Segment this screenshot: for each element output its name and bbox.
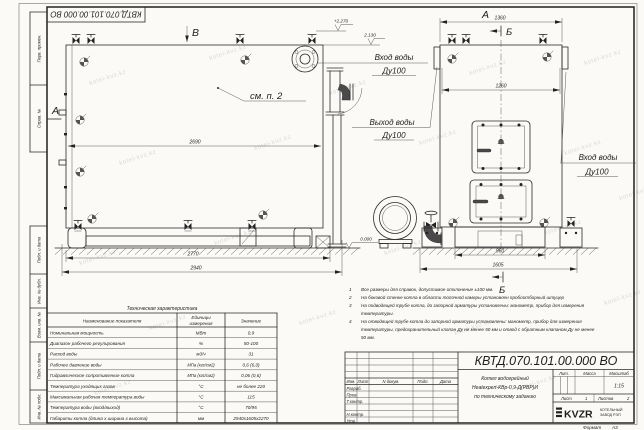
dim-1605: 1605 [492, 263, 503, 269]
tb-title-line1: Котел водогрейный [481, 375, 529, 382]
col-header-name: Наименование показателя [83, 319, 142, 324]
lifting-eye-icon [241, 54, 251, 64]
view-a-title: А [481, 9, 489, 21]
lifting-eye-icon [543, 51, 553, 61]
table-cell: Расход воды [50, 352, 78, 357]
table-cell: Температура воды (вход/выход) [50, 405, 121, 410]
note-line: На подводящей трубе котла, до запорной а… [361, 302, 585, 308]
tb-title-line2: Heatexpert-КВр-0,9-Д(РВР)И [472, 385, 538, 391]
svg-text:kotel-kvz.kz: kotel-kvz.kz [419, 129, 458, 147]
table-cell: Максимальная рабочая температура воды [50, 395, 145, 400]
ground [55, 248, 598, 255]
tb-sheets-value: 2 [626, 396, 630, 401]
valve-icon [462, 35, 470, 46]
tb-doc-number: КВТД.070.101.00.000 ВО [475, 354, 618, 368]
margin-label-podp1: Подп. и дата [37, 236, 42, 263]
format-note: Формат А3 [583, 425, 618, 430]
boiler-side-view [59, 35, 362, 249]
table-cell: °С [198, 405, 204, 410]
table-cell: 50-100 [244, 341, 259, 346]
tb-col-izm: Изм. [347, 379, 356, 384]
drain-valve-icon [74, 221, 82, 232]
svg-text:kotel-kvz.kz: kotel-kvz.kz [214, 229, 253, 247]
table-cell: 0,6 (6,0) [242, 362, 260, 367]
tb-sheet-value: 1 [585, 396, 587, 401]
tb-col-list: Лист [357, 379, 369, 384]
tb-sheet-label: Лист [560, 396, 572, 401]
table-cell: Рабочее давление воды [50, 362, 102, 367]
svg-text:kotel-kvz.kz: kotel-kvz.kz [619, 184, 644, 202]
view-arrow-v-label: В [192, 27, 199, 39]
view-arrow-a-label: А [51, 105, 59, 117]
note-line: На боковой стенке котла в области топочн… [361, 294, 565, 300]
table-cell: °С [198, 384, 204, 389]
lifting-eye-icon [449, 217, 459, 227]
valve-icon [308, 35, 316, 46]
table-cell: м3/ч [196, 352, 206, 357]
table-cell: Номинальная мощность [50, 330, 104, 335]
table-cell: Габариты котла (длина х ширина х высота) [50, 416, 148, 421]
note-number: 2 [348, 295, 352, 300]
tb-title-line3: по техническому заданию [474, 394, 536, 400]
svg-text:Ду100: Ду100 [381, 131, 406, 140]
tb-sheets-label: Листов [597, 396, 614, 401]
margin-label-inv-podl: Инв. № подл. [37, 394, 42, 420]
svg-text:Выход воды: Выход воды [370, 118, 415, 127]
table-cell: МПа (кгс/см2) [187, 362, 215, 367]
kvzr-logo: KVZR КОТЕЛЬНЫЙ ЗАВОД РЭП [556, 408, 623, 421]
tb-row-razrab: Разраб. [347, 386, 362, 391]
svg-text:kotel-kvz.kz: kotel-kvz.kz [604, 289, 643, 307]
format-value: А3 [611, 425, 618, 430]
drawing-sheet: kotel-kvz.kzkotel-kvz.kzkotel-kvz.kzkote… [0, 0, 644, 430]
svg-text:Вход воды: Вход воды [579, 153, 618, 162]
table-cell: мм [198, 416, 205, 421]
notes: 1 Все размеры для справок, допустимое от… [348, 287, 595, 340]
table-cell: Гидравлическое сопротивление котла [50, 373, 135, 378]
lifting-eye-icon [259, 209, 269, 219]
door-handle [477, 149, 491, 152]
tb-row-utv: Утв. [347, 418, 357, 423]
format-label: Формат [583, 425, 601, 430]
tech-table-title: Техническая характеристика [127, 306, 198, 312]
svg-text:kotel-kvz.kz: kotel-kvz.kz [149, 314, 188, 332]
dim-1360: 1360 [494, 16, 505, 22]
note-line: На отводящей трубе котла до запорной арм… [361, 318, 582, 324]
lifting-eye-icon [448, 53, 458, 63]
section-b-top-label: Б [506, 27, 512, 38]
svg-text:kotel-kvz.kz: kotel-kvz.kz [469, 59, 508, 77]
tb-row-tkontr: Т.контр. [347, 399, 364, 404]
door-lock-icon [498, 139, 505, 143]
base-frame [68, 228, 330, 248]
svg-text:Ду100: Ду100 [381, 67, 406, 76]
title-block: Изм. Лист N докум. Подп. Дата Разраб. Пр… [345, 352, 634, 423]
tb-row-nkontr: Н.контр. [347, 412, 365, 417]
svg-text:kotel-kvz.kz: kotel-kvz.kz [119, 149, 158, 167]
tb-scale-label: Масштаб [609, 371, 629, 376]
margin-label-perv: Перв. примен. [37, 35, 42, 63]
margin-label-sprav: Справ. № [37, 109, 42, 128]
svg-text:kotel-kvz.kz: kotel-kvz.kz [209, 44, 248, 62]
lifting-eye-icon [76, 114, 86, 124]
col-header-value: Значение [241, 319, 262, 324]
drain-valve-icon [184, 221, 192, 232]
tb-scale-value: 1:15 [614, 384, 624, 390]
note-number: 4 [349, 319, 352, 324]
table-cell: 0,9 [248, 330, 255, 335]
kvzr-logo-sub1: КОТЕЛЬНЫЙ [600, 408, 623, 412]
dim-2770: 2770 [186, 252, 198, 258]
svg-text:Вход воды: Вход воды [375, 53, 414, 62]
tb-lit-label: Лит. [558, 371, 569, 376]
inlet-right-label: Вход воды Ду100 [560, 72, 636, 177]
fan-blower [374, 197, 417, 249]
lifting-eye-icon [540, 217, 550, 227]
kvzr-logo-sub2: ЗАВОД РЭП [600, 413, 621, 417]
kvzr-logo-text: KVZR [564, 409, 593, 421]
watermarks: kotel-kvz.kzkotel-kvz.kzkotel-kvz.kzkote… [79, 44, 644, 397]
top-stamp: КВТД.070.101.00.000 ВО [47, 7, 145, 22]
table-cell: 31 [248, 352, 254, 357]
valve-icon [87, 35, 95, 46]
note-number: 3 [349, 303, 352, 308]
table-cell: Температура уходящих газов [50, 384, 115, 389]
note-line: 50 мм. [361, 335, 375, 340]
lifting-eye-icon [76, 166, 86, 176]
svg-text:kotel-kvz.kz: kotel-kvz.kz [254, 134, 293, 152]
tb-col-podp: Подп. [417, 379, 428, 384]
note-line: температуры, предохранительный клапан Ду… [361, 326, 595, 332]
ground-hatch [55, 248, 596, 254]
lifting-eye-icon [88, 213, 98, 223]
svg-text:Ду100: Ду100 [584, 168, 609, 177]
top-stamp-number: КВТД.070.101.00.000 ВО [50, 10, 141, 19]
table-cell: 115 [247, 395, 255, 400]
valve-icon [539, 35, 547, 46]
level-inlet-value: 2.130 [363, 33, 376, 38]
table-cell: °С [198, 395, 204, 400]
table-cell: МВт [196, 330, 207, 335]
margin-label-inv-dubl: Инв. № дубл. [37, 278, 42, 304]
col-header-units2: измерения [190, 321, 214, 326]
outlet-label: Выход воды Ду100 [352, 67, 437, 140]
see-note-label: см. п. 2 [250, 91, 283, 102]
tb-col-data: Дата [439, 379, 452, 384]
tb-massa-label: Масса [583, 371, 596, 376]
level-top-value: +2.270 [334, 19, 349, 24]
dim-2690: 2690 [188, 140, 200, 146]
table-cell: 2940х1605х2270 [232, 416, 269, 421]
dim-960: 960 [496, 249, 505, 255]
col-header-units1: Единицы [191, 315, 211, 320]
svg-text:kotel-kvz.kz: kotel-kvz.kz [89, 69, 128, 87]
inlet-flange [292, 46, 318, 72]
valve-icon [448, 35, 456, 46]
valve-icon [72, 35, 80, 46]
svg-text:kotel-kvz.kz: kotel-kvz.kz [584, 49, 623, 67]
door-handle [473, 200, 488, 203]
inlet-left-label: Вход воды Ду100 [318, 53, 428, 76]
lifting-eye-icon [80, 56, 90, 66]
drawing-canvas: kotel-kvz.kzkotel-kvz.kzkotel-kvz.kzkote… [0, 0, 644, 430]
boiler-front-view [422, 35, 582, 253]
margin-label-podp2: Подп. и дата [37, 352, 42, 379]
table-cell: Диапазон рабочего регулирования [49, 341, 126, 346]
note-line: Все размеры для справок, допустимое откл… [361, 287, 493, 292]
table-cell: не более 220 [237, 384, 265, 389]
margin-label-vzam: Взам. инв. № [37, 312, 42, 338]
view-labels: А В А Б Б см. п. 2 [47, 9, 512, 296]
table-cell: 0,06 (0,6) [241, 373, 261, 378]
door-lock-icon [498, 194, 505, 198]
table-cell: 70/95 [245, 405, 257, 410]
level-ground-value: 0.000 [360, 237, 372, 242]
dim-2940: 2940 [189, 266, 201, 272]
valve-icon [236, 35, 244, 46]
dimensions: 2690 2770 2940 1360 1260 960 1605 [62, 16, 577, 277]
tb-col-doc: N докум. [383, 379, 400, 384]
table-cell: % [199, 341, 203, 346]
margin-strip: Перв. примен. Справ. № Подп. и дата Инв.… [30, 12, 47, 423]
dim-1260: 1260 [495, 84, 506, 90]
tb-row-prov: Пров. [347, 392, 358, 397]
svg-text:kotel-kvz.kz: kotel-kvz.kz [299, 309, 338, 327]
note-number: 1 [349, 287, 352, 292]
table-cell: МПа (кгс/см2) [187, 373, 215, 378]
note-line: температуры. [361, 311, 394, 316]
